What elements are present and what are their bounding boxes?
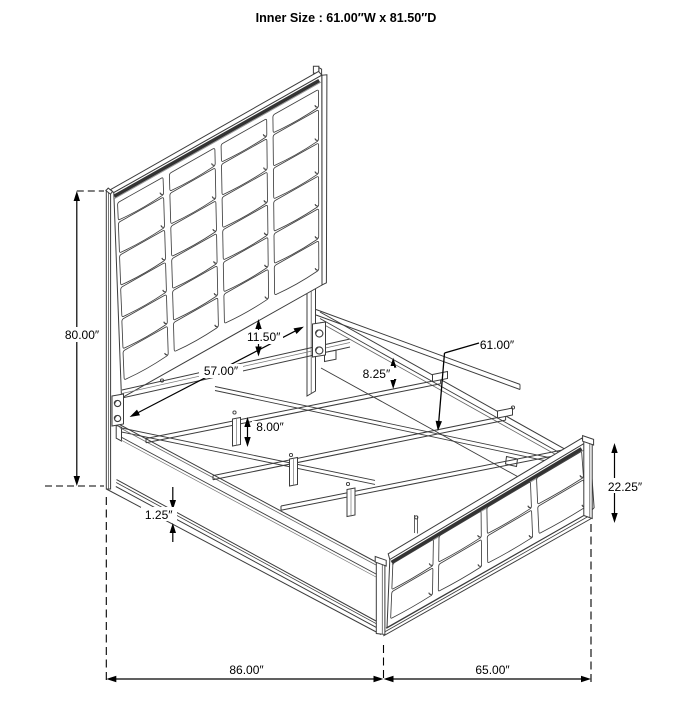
svg-text:8.25″: 8.25″ [363,367,391,381]
svg-text:65.00″: 65.00″ [475,663,510,677]
svg-text:22.25″: 22.25″ [608,480,643,494]
svg-text:86.00″: 86.00″ [229,663,264,677]
svg-text:61.00″: 61.00″ [480,338,515,352]
svg-text:Inner Size : 61.00″W x 81.50″D: Inner Size : 61.00″W x 81.50″D [256,11,437,25]
svg-text:8.00″: 8.00″ [256,420,284,434]
svg-text:1.25″: 1.25″ [145,508,173,522]
svg-text:80.00″: 80.00″ [65,328,100,342]
svg-text:57.00″: 57.00″ [204,364,239,378]
svg-text:11.50″: 11.50″ [247,330,281,344]
